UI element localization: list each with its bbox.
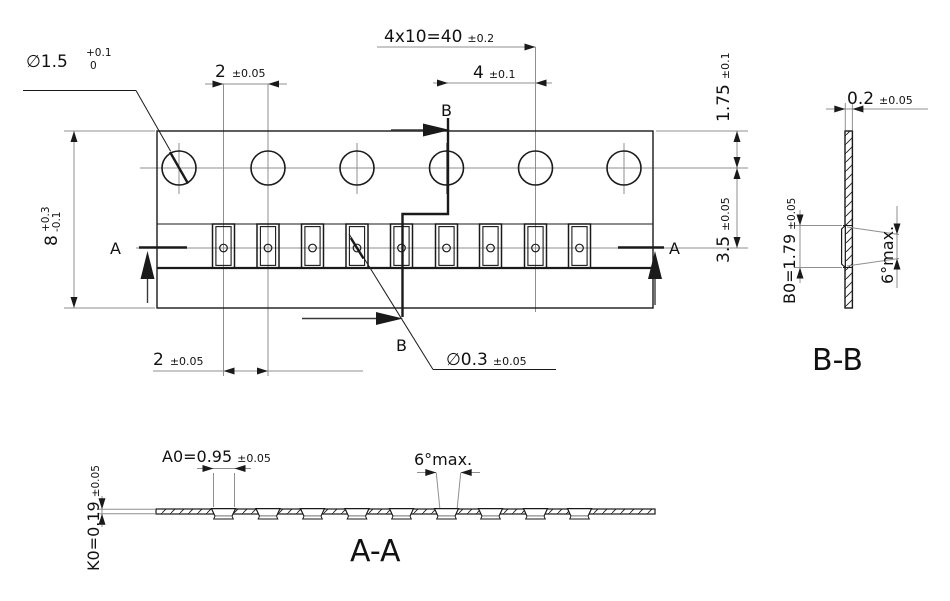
dim-pocket-pitch-bottom: 2±0.05 bbox=[153, 350, 363, 375]
svg-text:B0=1.79±0.05: B0=1.79±0.05 bbox=[780, 198, 799, 304]
dim-pocket-length-a0: A0=0.95±0.05 bbox=[162, 447, 271, 507]
section-b-label-bottom: B bbox=[396, 336, 407, 355]
component-pocket bbox=[480, 224, 502, 268]
svg-text:0: 0 bbox=[90, 60, 97, 72]
dim-bb-taper-angle: 6°max. bbox=[847, 206, 901, 288]
svg-text:2±0.05: 2±0.05 bbox=[215, 62, 266, 82]
section-bb-view: 0.2±0.05 B0=1.79±0.05 6°max. bbox=[780, 89, 928, 378]
tape-outline bbox=[157, 131, 653, 308]
aa-pocket-dip bbox=[568, 509, 592, 519]
section-b-label-top: B bbox=[441, 101, 452, 120]
svg-text:K0=0.19±0.05: K0=0.19±0.05 bbox=[84, 465, 103, 571]
svg-text:2±0.05: 2±0.05 bbox=[153, 350, 204, 370]
aa-pocket-dip bbox=[256, 509, 280, 519]
dim-tape-width: 8 +0.3 -0.1 bbox=[40, 131, 155, 308]
view-title-bb: B-B bbox=[812, 343, 863, 378]
dim-pocket-depth-k0: K0=0.19±0.05 bbox=[84, 465, 156, 571]
view-title-aa: A-A bbox=[350, 534, 401, 569]
drawing-canvas: B B A A 4x10=40±0.2 bbox=[0, 0, 950, 601]
dim-aa-taper-angle: 6°max. bbox=[414, 450, 480, 508]
component-pocket bbox=[436, 224, 458, 268]
bb-pocket-bulge bbox=[842, 226, 846, 268]
aa-pocket-dip bbox=[301, 509, 325, 519]
section-a-label-left: A bbox=[110, 239, 121, 258]
svg-text:8: 8 bbox=[42, 235, 62, 246]
aa-pocket-dip bbox=[479, 509, 503, 519]
section-b-arrow-top bbox=[423, 124, 450, 137]
section-a-arrow-right bbox=[648, 251, 662, 279]
dim-pocket-offset-top: 2±0.05 bbox=[205, 62, 287, 88]
svg-text:0.2±0.05: 0.2±0.05 bbox=[847, 89, 913, 109]
dim-hole-pitch: 4±0.1 bbox=[433, 63, 552, 87]
svg-text:+0.1: +0.1 bbox=[86, 47, 112, 59]
component-pocket bbox=[302, 224, 324, 268]
dim-thickness: 0.2±0.05 bbox=[826, 89, 928, 130]
dim-edge-to-hole-center: 1.75±0.1 bbox=[656, 52, 748, 248]
carrier-tape-drawing: B B A A 4x10=40±0.2 bbox=[0, 0, 950, 601]
aa-pocket-dip bbox=[390, 509, 414, 519]
aa-pocket-dip bbox=[524, 509, 548, 519]
dim-pitch-total: 4x10=40±0.2 bbox=[377, 27, 536, 51]
svg-text:∅0.3±0.05: ∅0.3±0.05 bbox=[446, 350, 527, 370]
svg-text:3.5±0.05: 3.5±0.05 bbox=[714, 197, 734, 263]
svg-text:-0.1: -0.1 bbox=[51, 212, 63, 233]
aa-pocket-dip bbox=[345, 509, 369, 519]
section-line-a: A A bbox=[110, 239, 680, 305]
svg-text:∅1.5: ∅1.5 bbox=[26, 52, 68, 72]
svg-text:4x10=40±0.2: 4x10=40±0.2 bbox=[384, 27, 494, 47]
section-a-label-right: A bbox=[669, 239, 680, 258]
svg-text:1.75±0.1: 1.75±0.1 bbox=[714, 52, 734, 122]
svg-text:A0=0.95±0.05: A0=0.95±0.05 bbox=[162, 447, 271, 466]
aa-pocket-dip bbox=[435, 509, 459, 519]
bb-tape-section bbox=[845, 131, 852, 308]
top-view: B B A A 4x10=40±0.2 bbox=[23, 27, 748, 376]
component-pocket bbox=[569, 224, 591, 268]
aa-pocket-dip bbox=[212, 509, 236, 519]
section-aa-view: A0=0.95±0.05 6°max. K0=0.19±0.05 bbox=[84, 447, 655, 571]
svg-text:6°max.: 6°max. bbox=[414, 450, 472, 469]
section-a-arrow-left bbox=[141, 251, 155, 279]
svg-text:4±0.1: 4±0.1 bbox=[473, 63, 516, 83]
section-line-b: B B bbox=[302, 101, 452, 355]
dim-pocket-width-b0: B0=1.79±0.05 bbox=[780, 198, 842, 304]
svg-text:6°max.: 6°max. bbox=[878, 226, 897, 284]
